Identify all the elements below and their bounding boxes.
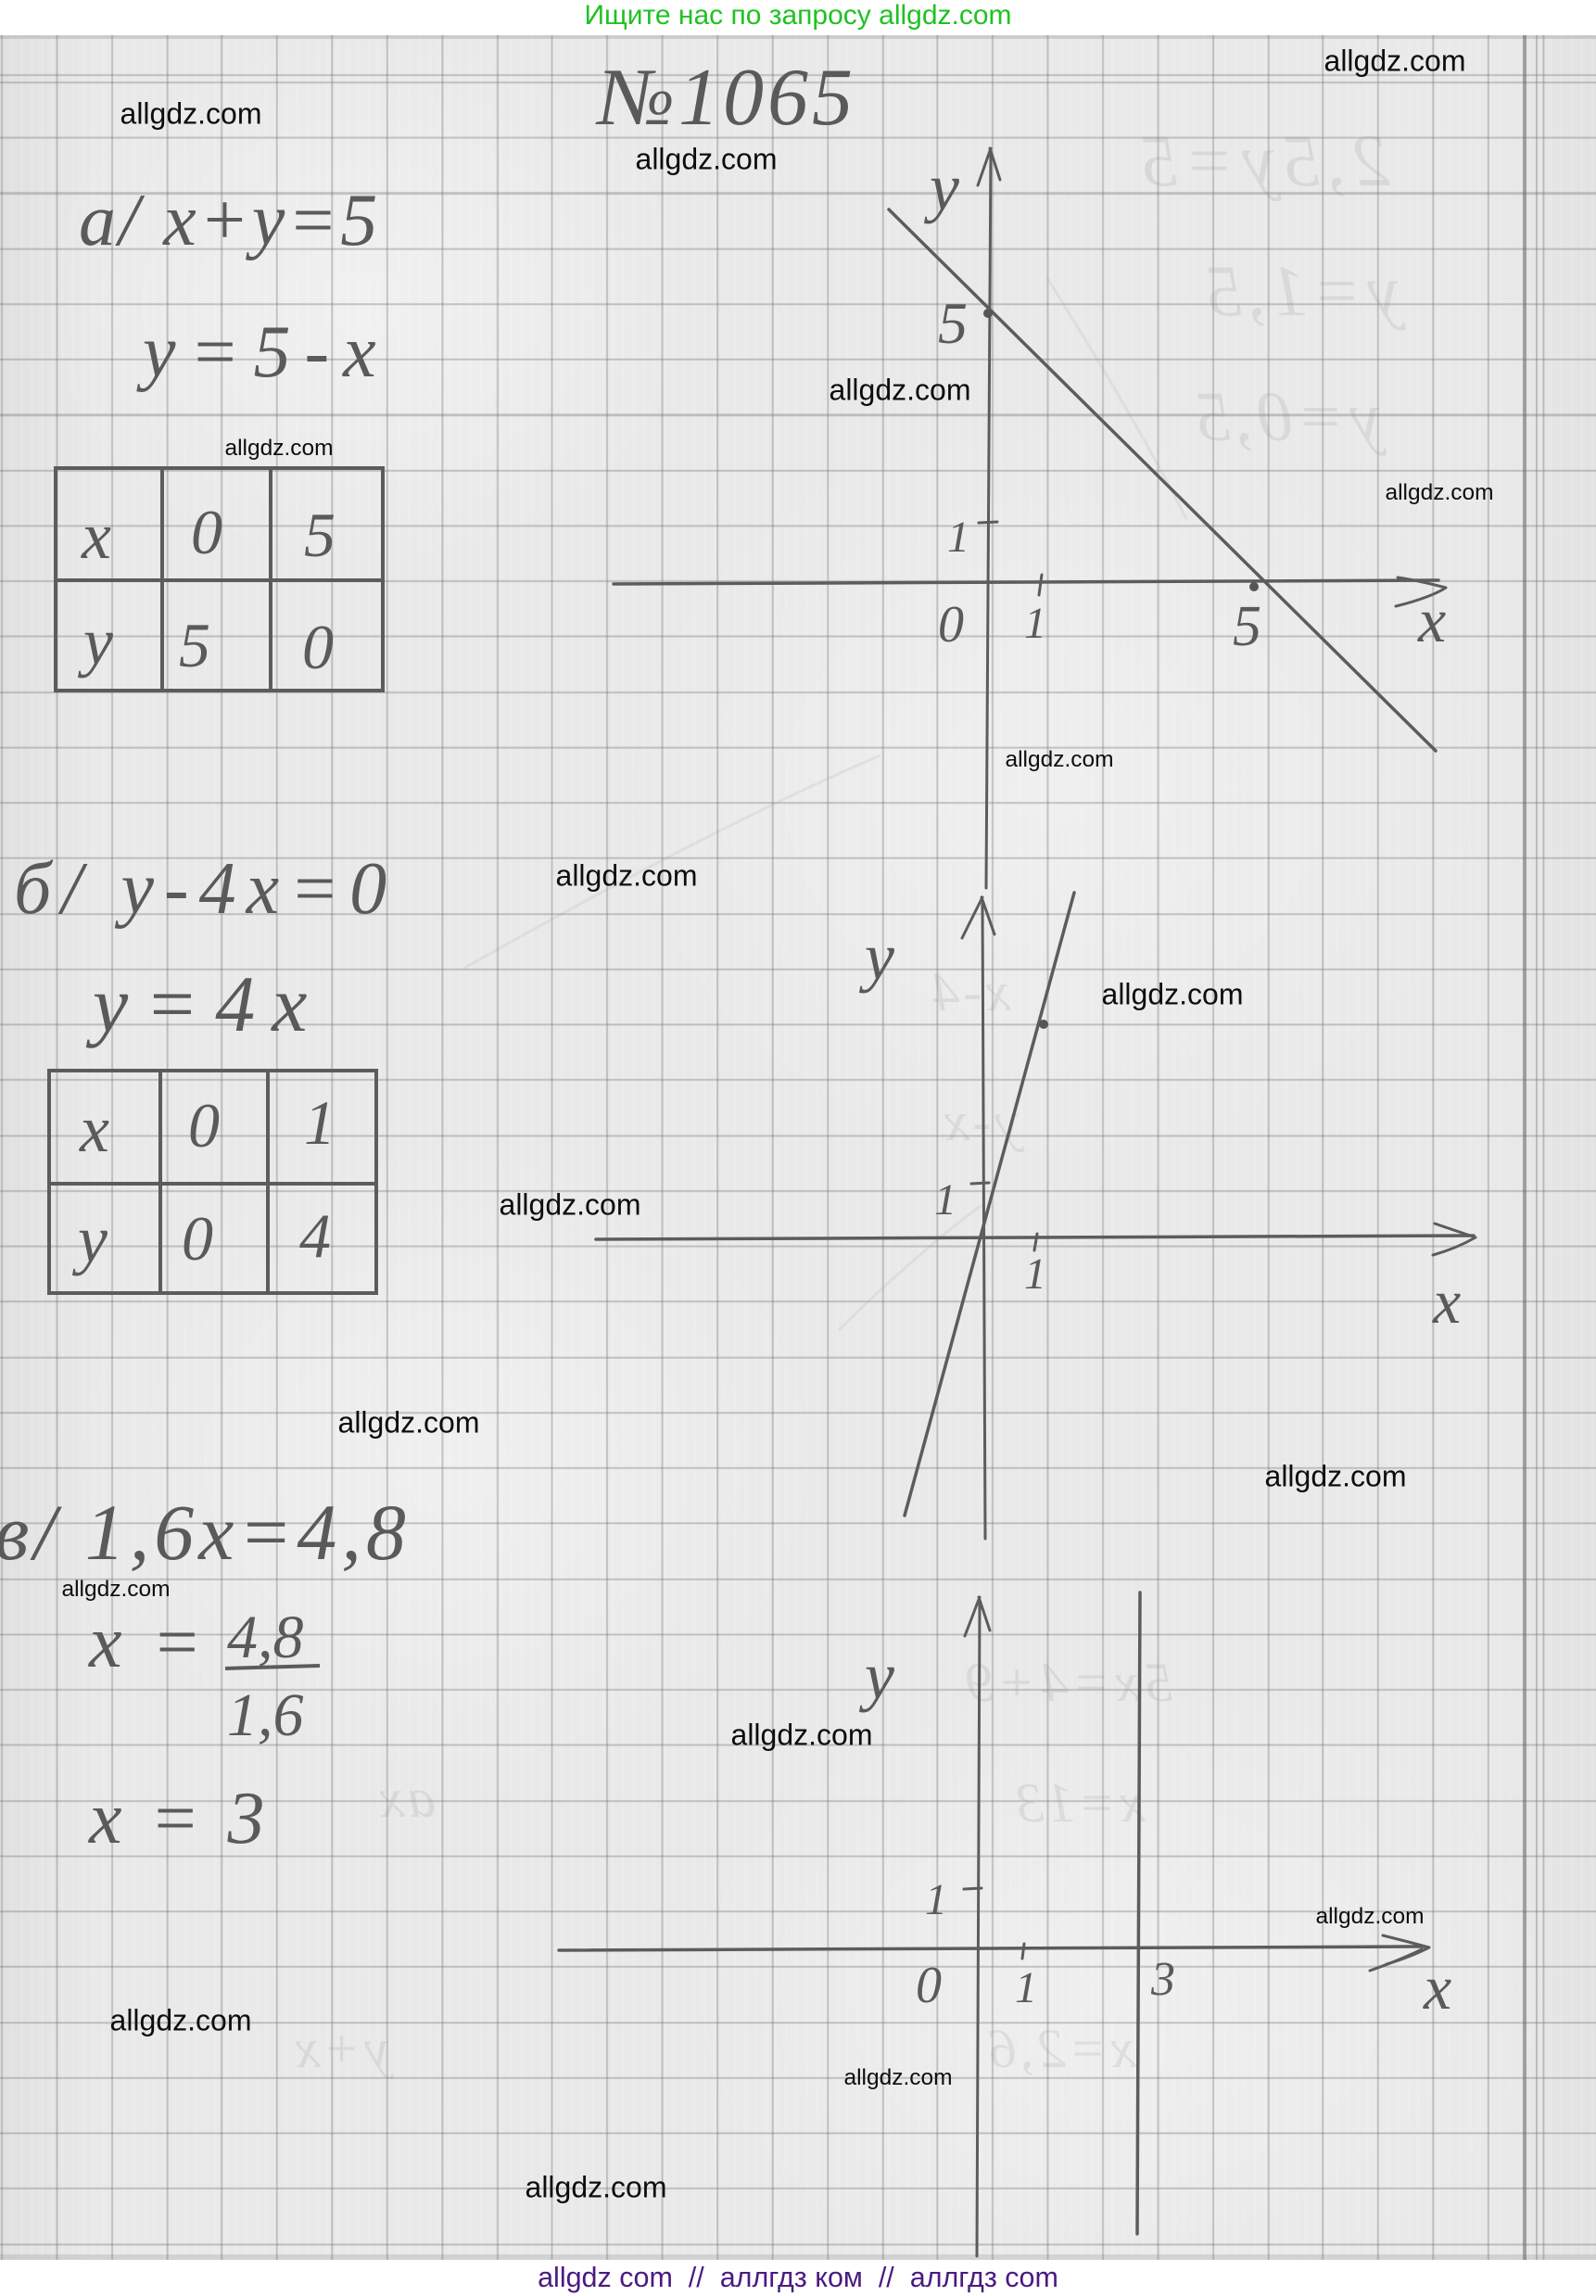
- svg-text:3: 3: [1150, 1953, 1175, 2006]
- svg-text:1: 1: [1024, 599, 1046, 648]
- svg-text:х: х: [79, 1092, 109, 1166]
- svg-text:0: 0: [188, 1090, 220, 1161]
- svg-text:ах: ах: [375, 1768, 436, 1829]
- svg-text:№1065: №1065: [595, 53, 856, 143]
- svg-text:у: у: [71, 1202, 108, 1276]
- svg-text:х =: х =: [88, 1602, 208, 1683]
- svg-text:1: 1: [934, 1175, 956, 1224]
- svg-text:4: 4: [299, 1200, 331, 1271]
- svg-text:0: 0: [916, 1957, 942, 2014]
- svg-text:у: у: [858, 920, 894, 994]
- svg-text:у=0,5: у=0,5: [1191, 378, 1387, 456]
- svg-text:0: 0: [191, 497, 222, 567]
- svg-text:у: у: [77, 604, 113, 679]
- svg-text:х-4: х-4: [928, 961, 1011, 1022]
- svg-text:у=1,5: у=1,5: [1200, 250, 1406, 331]
- svg-text:0: 0: [302, 612, 334, 682]
- svg-text:1: 1: [947, 513, 969, 562]
- svg-text:х: х: [1423, 1952, 1451, 2023]
- svg-text:0: 0: [938, 596, 964, 653]
- svg-text:в/ 1,6х=4,8: в/ 1,6х=4,8: [0, 1488, 411, 1577]
- svg-text:5: 5: [304, 500, 336, 570]
- svg-text:2,5у=5: 2,5у=5: [1134, 121, 1391, 202]
- svg-text:5: 5: [1233, 595, 1261, 658]
- svg-text:у: у: [858, 1639, 894, 1713]
- svg-text:х=2,6: х=2,6: [985, 2018, 1136, 2079]
- svg-text:0: 0: [182, 1203, 213, 1274]
- svg-text:1,6: 1,6: [227, 1681, 304, 1749]
- svg-text:5: 5: [938, 290, 968, 356]
- svg-text:1: 1: [1015, 1963, 1037, 2012]
- svg-text:х=13: х=13: [1012, 1772, 1146, 1833]
- svg-text:х: х: [81, 499, 111, 573]
- svg-text:у+х: у+х: [291, 2018, 395, 2079]
- svg-text:а/ х+у=5: а/ х+у=5: [79, 180, 380, 261]
- svg-text:у=5-х: у=5-х: [136, 311, 390, 393]
- svg-text:х = 3: х = 3: [88, 1778, 270, 1859]
- svg-text:б/ у-4х=0: б/ у-4х=0: [14, 848, 397, 930]
- svg-text:у: у: [923, 150, 959, 224]
- svg-text:1: 1: [1024, 1249, 1046, 1299]
- svg-text:4,8: 4,8: [227, 1604, 304, 1671]
- svg-text:1: 1: [304, 1087, 336, 1158]
- svg-text:5: 5: [179, 610, 210, 680]
- svg-text:у=4х: у=4х: [85, 959, 323, 1048]
- svg-text:1: 1: [925, 1875, 947, 1924]
- svg-text:х: х: [1432, 1266, 1461, 1337]
- svg-text:х: х: [1417, 585, 1446, 655]
